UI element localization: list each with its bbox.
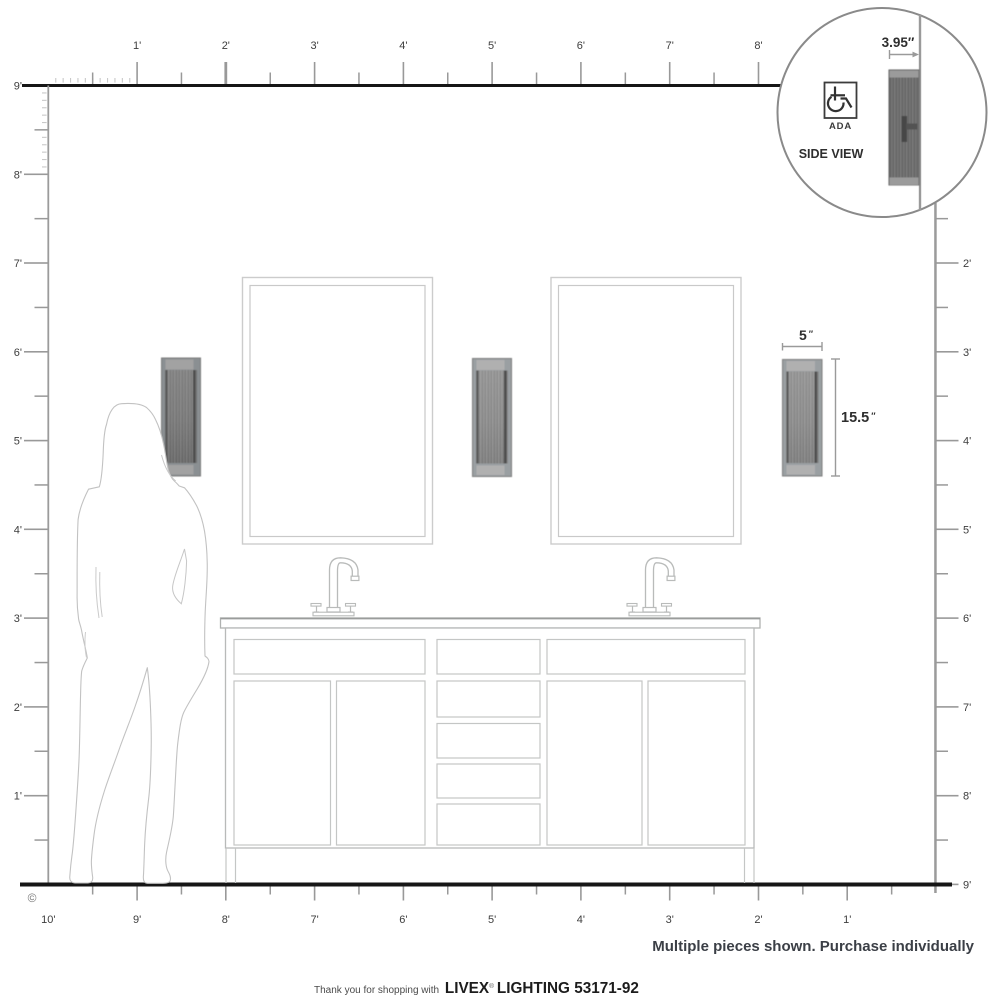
- svg-text:4': 4': [14, 524, 22, 536]
- svg-text:5': 5': [488, 914, 496, 926]
- svg-text:5': 5': [488, 40, 496, 52]
- svg-text:2': 2': [754, 914, 762, 926]
- svg-text:SIDE VIEW: SIDE VIEW: [799, 147, 864, 161]
- svg-text:ADA: ADA: [829, 121, 852, 132]
- svg-text:©: ©: [28, 891, 37, 905]
- svg-text:8': 8': [222, 914, 230, 926]
- svg-text:2': 2': [222, 40, 230, 52]
- svg-text:Multiple pieces shown. Purcha: Multiple pieces shown. Purchase individu…: [652, 938, 974, 955]
- svg-text:10': 10': [41, 914, 55, 926]
- svg-text:6': 6': [14, 347, 22, 359]
- svg-text:3': 3': [666, 914, 674, 926]
- svg-text:1': 1': [14, 791, 22, 803]
- svg-text:7': 7': [310, 914, 318, 926]
- svg-text:1': 1': [133, 40, 141, 52]
- svg-text:2': 2': [963, 258, 971, 270]
- svg-text:4': 4': [577, 914, 585, 926]
- svg-text:4': 4': [963, 436, 971, 448]
- svg-text:3.95″: 3.95″: [882, 35, 915, 50]
- svg-text:8': 8': [754, 40, 762, 52]
- svg-text:7': 7': [963, 702, 971, 714]
- svg-text:9': 9': [133, 914, 141, 926]
- svg-text:6': 6': [963, 613, 971, 625]
- svg-text:3': 3': [14, 613, 22, 625]
- svg-text:4': 4': [399, 40, 407, 52]
- svg-text:8': 8': [963, 791, 971, 803]
- svg-text:7': 7': [14, 258, 22, 270]
- svg-text:3': 3': [963, 347, 971, 359]
- svg-text:6': 6': [399, 914, 407, 926]
- svg-text:9': 9': [14, 81, 22, 93]
- svg-text:8': 8': [14, 169, 22, 181]
- svg-text:9': 9': [963, 879, 971, 891]
- svg-text:5': 5': [963, 524, 971, 536]
- svg-text:3': 3': [310, 40, 318, 52]
- svg-text:2': 2': [14, 702, 22, 714]
- svg-text:1': 1': [843, 914, 851, 926]
- svg-text:5': 5': [14, 436, 22, 448]
- svg-text:6': 6': [577, 40, 585, 52]
- svg-text:7': 7': [666, 40, 674, 52]
